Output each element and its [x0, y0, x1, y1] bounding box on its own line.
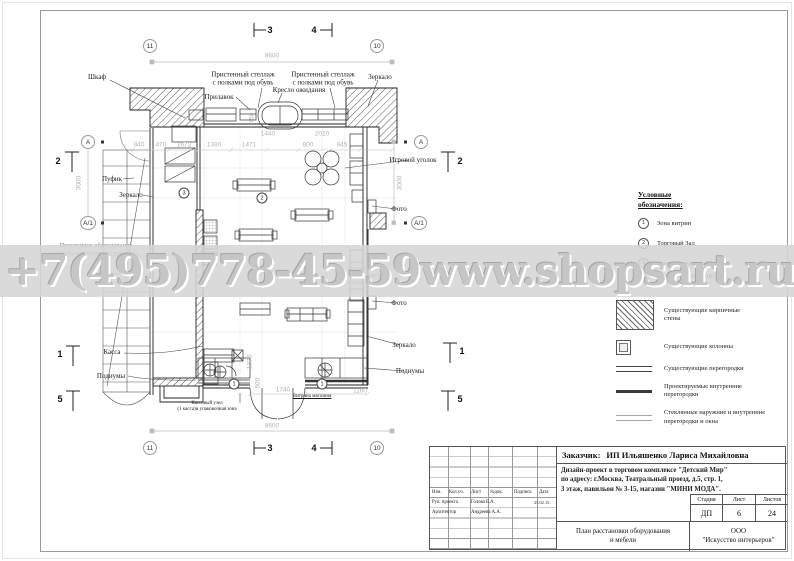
- grid-axis-bubble: 10: [370, 441, 384, 455]
- legend-symbol-item: Существующие перегородки: [616, 365, 788, 373]
- dimension-text: 750: [249, 113, 256, 124]
- zone-number-circle: 2: [257, 193, 268, 204]
- axis-bubble: А/1: [411, 216, 427, 230]
- col-header: №док.: [490, 489, 503, 497]
- watermark: +7(495)778-45-59 www.shopsart.ru: [0, 246, 794, 296]
- dimension-text: 470: [156, 142, 167, 149]
- dimension-text: 500: [255, 378, 262, 389]
- zone-number-circle: 1: [317, 379, 328, 390]
- legend-symbol-label: Стеклянные наружние и внутренние перегор…: [664, 409, 765, 425]
- person-role: Рук. проекта: [432, 499, 458, 507]
- project-line: 3 этаж, павильон № 3-15, магазин "МИНИ М…: [561, 485, 785, 494]
- company-name-line: ООО: [731, 527, 746, 536]
- customer-row: Заказчик: ИП Ильяшенко Лариса Михайловна: [557, 447, 787, 464]
- legend-symbol-label: Существующие кирпичные стены: [664, 307, 740, 323]
- stage-value: ДП: [691, 505, 723, 522]
- zone-number-circle: 1: [229, 379, 240, 390]
- section-marker-number: 1: [57, 349, 62, 359]
- legend-symbol-item: Существующие кирпичные стены: [616, 300, 788, 330]
- legend-symbol-item: Проектируемые внутренние перегородки: [616, 383, 788, 399]
- grid-axis-bubble: 11: [143, 39, 157, 53]
- sheets-value: 24: [756, 505, 788, 522]
- dimension-text: 1160: [353, 388, 367, 395]
- person-role: Архитектор: [432, 509, 456, 517]
- plan-label: Витрина магазина: [293, 394, 332, 400]
- dimension-text: 945: [337, 142, 348, 149]
- watermark-site: www.shopsart.ru: [420, 246, 794, 296]
- project-description: Дизайн-проект в торговом комплексе "Детс…: [561, 466, 785, 494]
- legend-symbol-label: Проектируемые внутренние перегородки: [664, 383, 742, 399]
- section-marker-number: 4: [311, 25, 316, 35]
- plan-label: Подиумы: [396, 367, 424, 375]
- title-block: Изм. Кол.уч. Лист №док. Подпись Дата Рук…: [429, 446, 786, 550]
- sign-date: 25.02.15.: [534, 499, 550, 507]
- section-marker-number: 5: [457, 394, 462, 404]
- col-header: Дата: [539, 489, 549, 497]
- revision-table: Изм. Кол.уч. Лист №док. Подпись Дата Рук…: [430, 447, 557, 549]
- col-header: Подпись: [514, 489, 532, 497]
- project-line: Дизайн-проект в торговом комплексе "Детс…: [561, 466, 785, 475]
- document-title: План расстановки оборудования и мебели: [557, 521, 690, 551]
- person-name: Андреева А.А.: [471, 509, 501, 517]
- project-line: по адресу: г.Москва, Театральный проезд,…: [561, 475, 785, 484]
- plan-label: Подиумы: [97, 372, 125, 380]
- dimension-text: 1440: [261, 131, 275, 138]
- sheets-header: Листов: [756, 495, 788, 505]
- legend-symbol-item: Стеклянные наружние и внутренние перегор…: [616, 409, 788, 425]
- document-title-line: и мебели: [610, 536, 636, 545]
- stage-header: Стадия: [691, 495, 723, 505]
- new-partition-symbol: [616, 390, 656, 394]
- section-marker-number: 2: [457, 156, 462, 166]
- plan-label: Прилавок: [204, 93, 233, 101]
- plan-label: Зеркало: [368, 73, 392, 81]
- legend-symbol-item: Существующие колонны: [616, 340, 788, 355]
- dimension-text: 8600: [265, 423, 279, 430]
- drawing-sheet: ШкафПристенный стеллаж с полками под обу…: [0, 0, 794, 561]
- plan-label: Шкаф: [88, 73, 106, 81]
- document-title-line: План расстановки оборудования: [576, 527, 670, 536]
- section-marker-number: 1: [459, 346, 464, 356]
- person-name: Голова Е.А.: [471, 499, 495, 507]
- plan-label: Игровой уголок: [389, 156, 436, 164]
- plan-label: Фото: [391, 205, 406, 213]
- section-marker-number: 2: [55, 156, 60, 166]
- dimension-text: 3000: [397, 176, 404, 190]
- axis-bubble: А: [414, 135, 428, 149]
- stage-table: Стадия Лист Листов ДП 6 24: [690, 494, 787, 521]
- existing-partition-symbol: [616, 366, 656, 372]
- col-header: Лист: [471, 489, 481, 497]
- dimension-text: 2010: [315, 131, 329, 138]
- legend-symbol-label: Существующие перегородки: [664, 365, 744, 373]
- dimension-text: 1740: [276, 387, 290, 394]
- customer-name: ИП Ильяшенко Лариса Михайловна: [606, 450, 748, 460]
- grid-axis-bubble: 10: [370, 39, 384, 53]
- dimension-text: 1380: [207, 142, 221, 149]
- section-marker-number: 5: [57, 394, 62, 404]
- dimension-text: 8600: [265, 53, 279, 60]
- company-cell: ООО "Искусство интерьеров": [690, 521, 787, 551]
- axis-bubble: А/1: [80, 216, 96, 230]
- legend-symbols: Существующие кирпичные стены Существующи…: [616, 300, 788, 436]
- plan-label: Зеркало: [392, 341, 416, 349]
- brick-hatch-symbol: [616, 300, 656, 330]
- dimension-text: 800: [303, 142, 314, 149]
- sheet-header: Лист: [723, 495, 756, 505]
- plan-label: Кресло ожидания: [273, 86, 326, 94]
- customer-label: Заказчик:: [562, 450, 600, 460]
- column-symbol: [616, 340, 656, 355]
- glass-partition-symbol: [616, 415, 656, 421]
- plan-label: Фото: [391, 299, 406, 307]
- grid-axis-bubble: 11: [143, 441, 157, 455]
- col-header: Кол.уч.: [449, 489, 464, 497]
- dimension-text: 1471: [242, 142, 256, 149]
- dimension-text: 1673: [177, 142, 191, 149]
- plan-label: Зеркало: [119, 191, 143, 199]
- dimension-text: 3000: [76, 176, 83, 190]
- plan-label: Касса: [103, 348, 120, 356]
- watermark-phone: +7(495)778-45-59: [5, 246, 420, 296]
- zone-number-circle: 3: [179, 188, 190, 199]
- plan-label: Пристенный стеллаж с полками под обувь: [211, 71, 274, 88]
- section-marker-number: 3: [267, 25, 272, 35]
- plan-label: Пуфик: [102, 175, 122, 183]
- sheet-value: 6: [723, 505, 756, 522]
- plan-label: Кассовый узел (1 касса)и упаковочная зон…: [177, 401, 236, 413]
- legend-symbol-label: Существующие колонны: [664, 343, 733, 351]
- company-name-line: "Искусство интерьеров": [702, 536, 774, 545]
- dimension-text: 940: [134, 142, 145, 149]
- axis-bubble: А: [81, 135, 95, 149]
- section-marker-number: 3: [267, 443, 272, 453]
- col-header: Изм.: [432, 489, 442, 497]
- dimension-text: 1375: [247, 355, 254, 369]
- section-marker-number: 4: [311, 443, 316, 453]
